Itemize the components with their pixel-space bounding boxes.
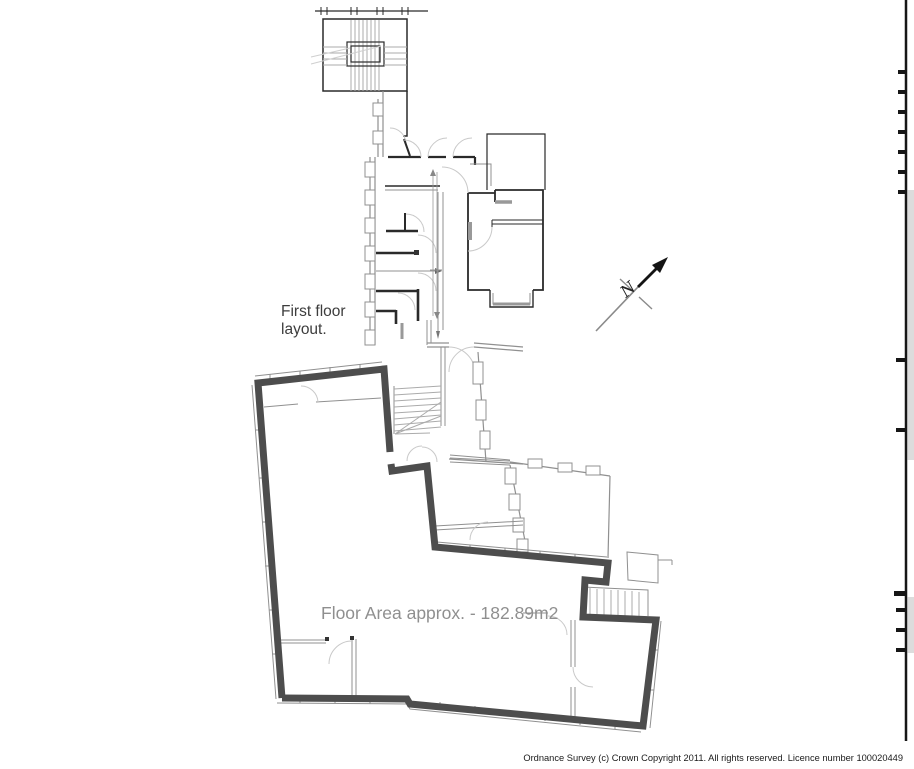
arrow-head — [430, 169, 436, 176]
wall-pier — [468, 222, 472, 240]
floor-area-label: Floor Area approx. - 182.89m2 — [321, 603, 558, 623]
arrow-head — [436, 331, 440, 339]
floor-plan-page: N First floor layout. Floor Area approx.… — [0, 0, 914, 769]
wall-end-block — [350, 636, 354, 640]
main-stair-hall — [394, 343, 523, 464]
west-wall-windows — [365, 157, 375, 345]
edge-wall-fill — [908, 597, 914, 653]
layout-label-line1: First floor — [281, 303, 346, 320]
edge-wall-fill — [908, 190, 914, 460]
north-label: N — [616, 277, 640, 302]
right-edge-structure — [894, 0, 914, 741]
copyright-text: Ordnance Survey (c) Crown Copyright 2011… — [523, 753, 903, 763]
layout-label-line2: layout. — [281, 321, 327, 338]
demise-boundary-upper — [258, 369, 390, 698]
middle-right-rooms — [442, 134, 545, 307]
floor-plan-drawing: N First floor layout. Floor Area approx.… — [0, 0, 914, 769]
arrow-head — [434, 312, 440, 319]
wall-end-block — [325, 637, 329, 641]
north-arrow: N — [596, 257, 668, 331]
demise-boundary-main — [282, 464, 656, 726]
demise-interior — [264, 386, 610, 722]
top-stairwell — [311, 7, 428, 91]
central-corridor — [427, 169, 443, 345]
wall-end-block — [414, 250, 419, 255]
demise-boundary — [258, 369, 656, 726]
wc-partitions — [376, 213, 442, 339]
